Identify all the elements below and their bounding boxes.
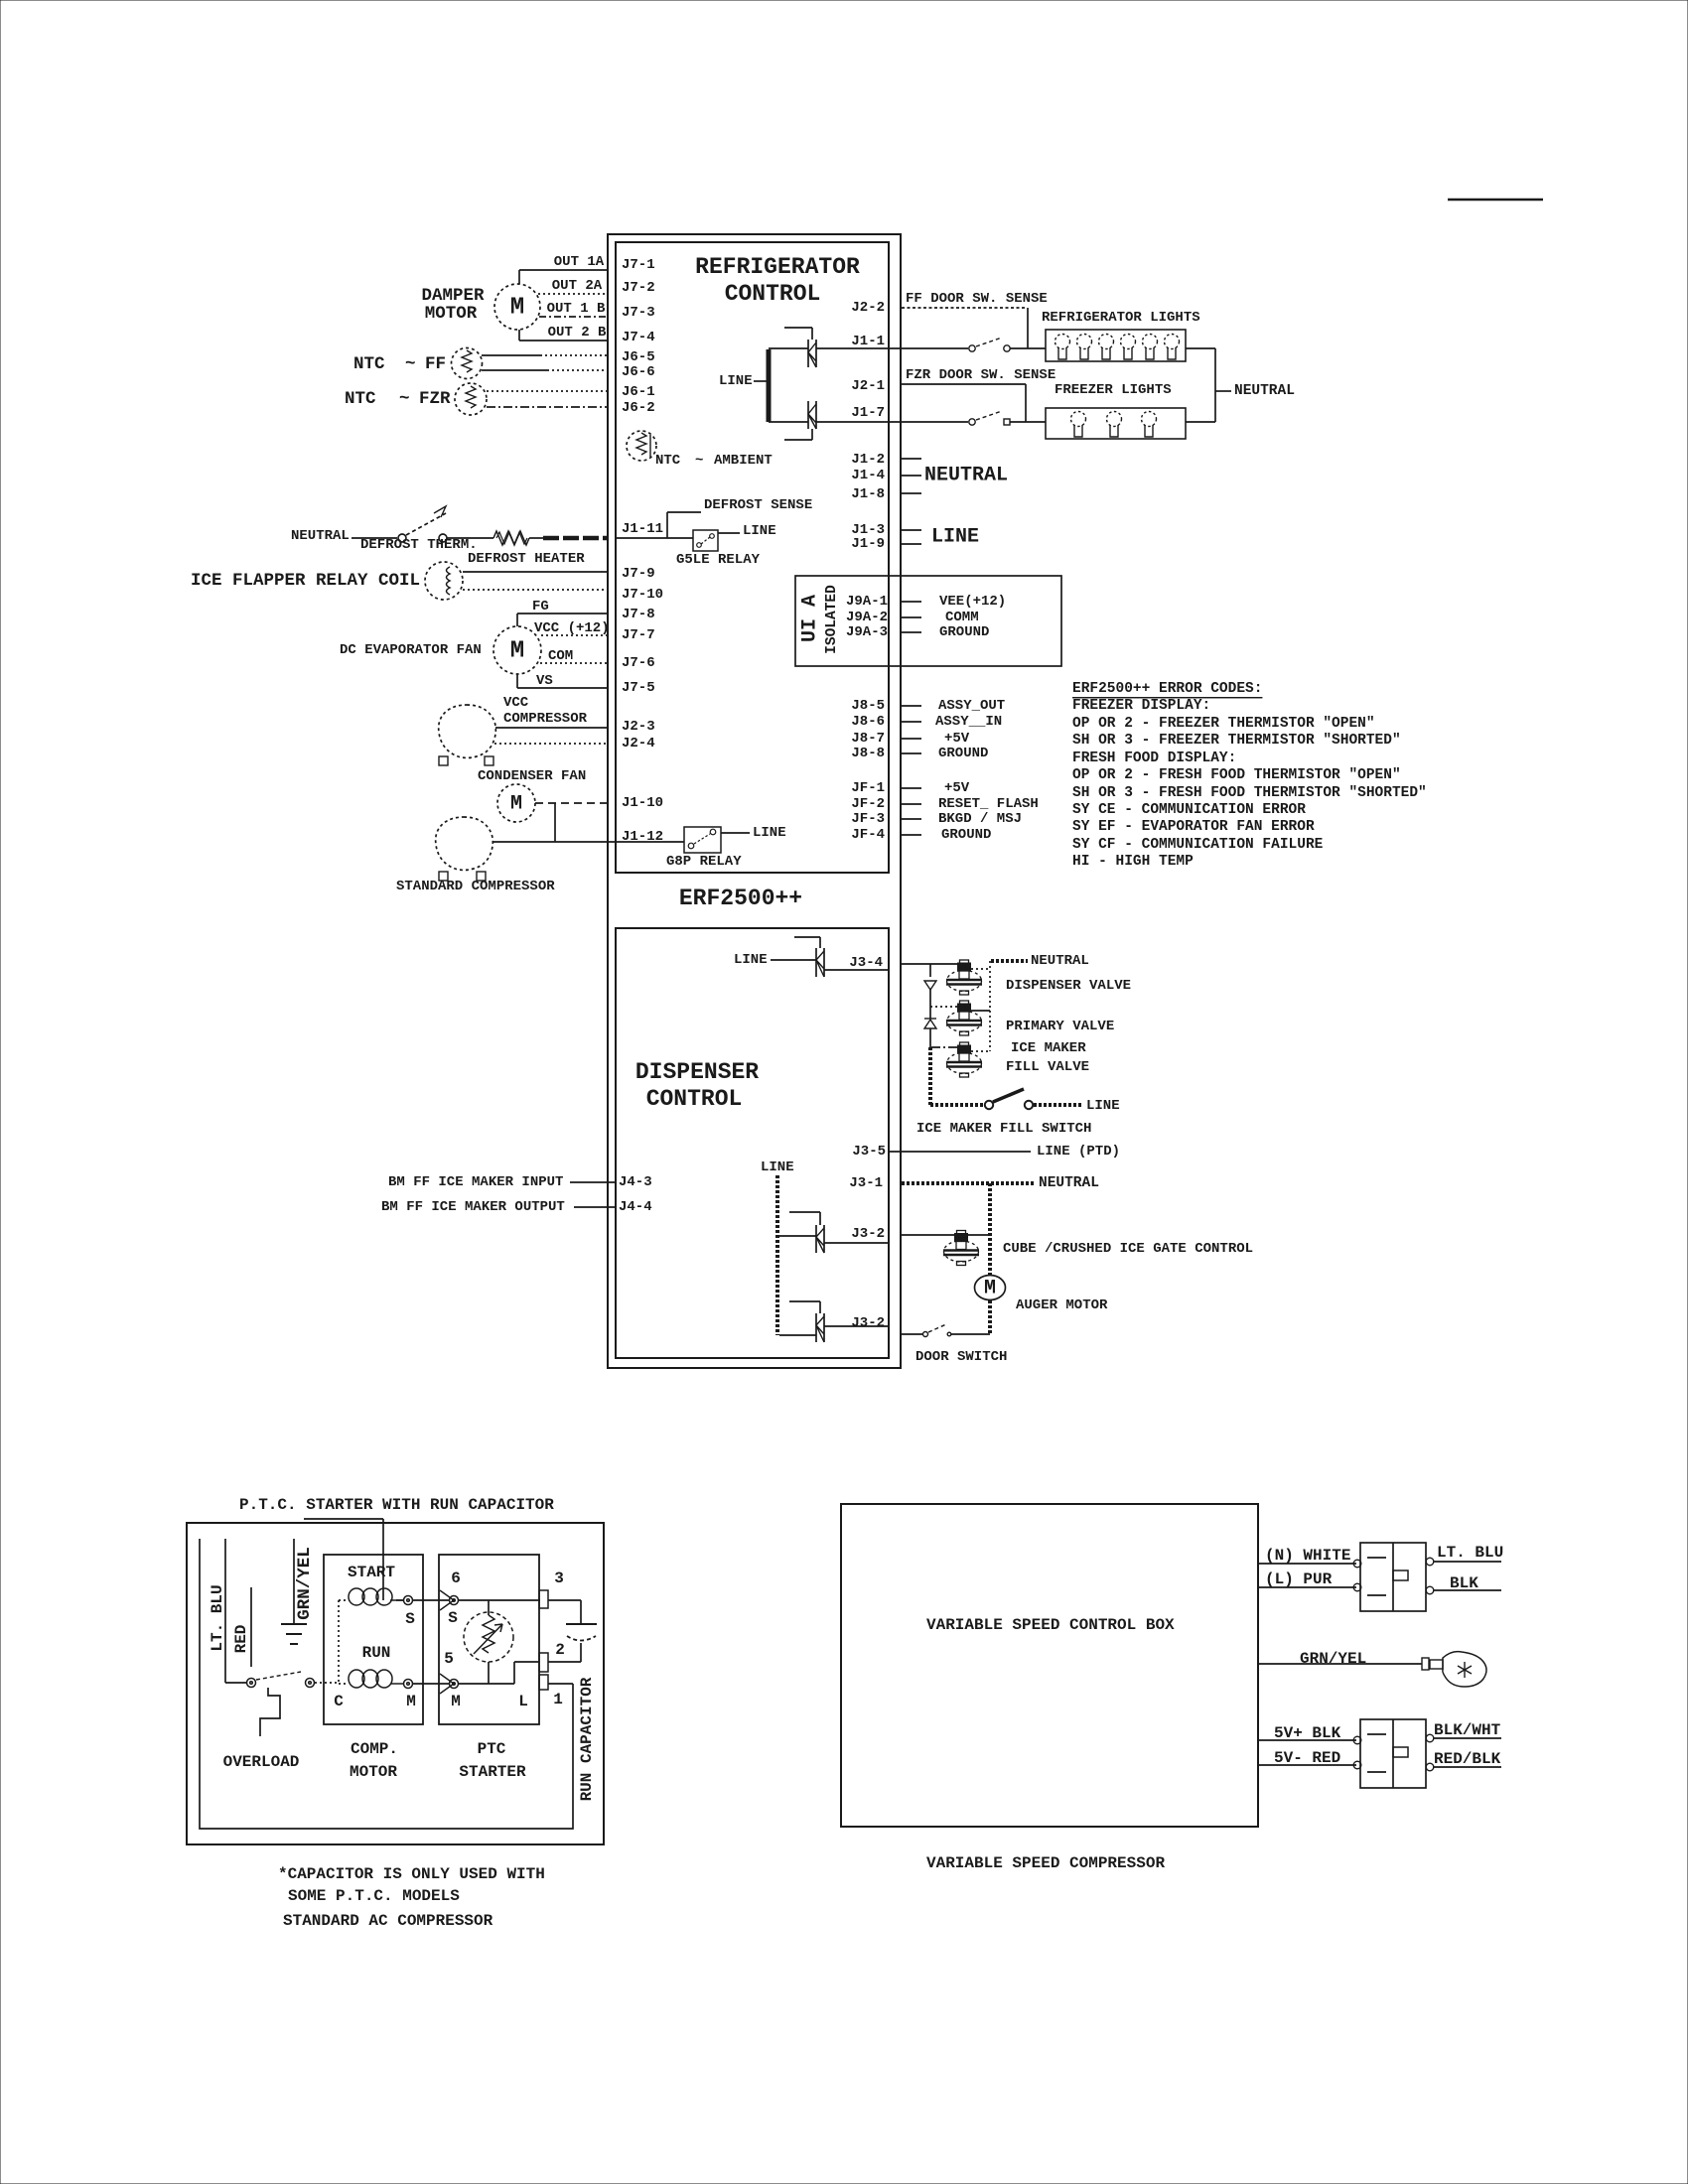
svg-text:RUN: RUN <box>362 1644 391 1662</box>
svg-text:J1-4: J1-4 <box>851 468 885 483</box>
svg-text:DISPENSER: DISPENSER <box>635 1059 759 1085</box>
svg-text:BKGD / MSJ: BKGD / MSJ <box>938 811 1022 827</box>
svg-text:FZR: FZR <box>419 389 451 409</box>
svg-text:CUBE /CRUSHED ICE GATE CONTROL: CUBE /CRUSHED ICE GATE CONTROL <box>1003 1241 1253 1257</box>
svg-text:J6-6: J6-6 <box>622 364 655 380</box>
svg-text:DISPENSER VALVE: DISPENSER VALVE <box>1006 978 1131 994</box>
svg-text:LINE: LINE <box>743 523 776 539</box>
svg-text:CONDENSER FAN: CONDENSER FAN <box>478 768 586 784</box>
svg-text:DC EVAPORATOR FAN: DC EVAPORATOR FAN <box>340 642 482 658</box>
svg-text:FREEZER DISPLAY:: FREEZER DISPLAY: <box>1072 698 1210 714</box>
svg-text:6: 6 <box>451 1570 461 1587</box>
svg-text:START: START <box>348 1564 395 1581</box>
svg-text:J7-1: J7-1 <box>622 257 655 273</box>
svg-text:J7-4: J7-4 <box>622 330 655 345</box>
svg-text:OUT 2 B: OUT 2 B <box>548 325 607 341</box>
svg-text:ISOLATED: ISOLATED <box>824 585 840 654</box>
svg-text:LINE: LINE <box>1086 1098 1120 1114</box>
svg-text:J7-8: J7-8 <box>622 607 655 622</box>
svg-text:ERF2500++ ERROR CODES:: ERF2500++ ERROR CODES: <box>1072 681 1262 697</box>
svg-text:SY CE - COMMUNICATION ERROR: SY CE - COMMUNICATION ERROR <box>1072 802 1306 818</box>
svg-text:J4-3: J4-3 <box>619 1174 652 1190</box>
svg-text:DAMPER: DAMPER <box>421 286 485 306</box>
svg-text:RESET_ FLASH: RESET_ FLASH <box>938 796 1039 812</box>
svg-text:GROUND: GROUND <box>938 746 988 761</box>
svg-text:J2-2: J2-2 <box>851 300 885 316</box>
svg-text:1: 1 <box>553 1691 563 1708</box>
svg-text:~: ~ <box>399 389 410 409</box>
svg-text:VCC: VCC <box>503 695 529 711</box>
svg-text:STANDARD COMPRESSOR: STANDARD COMPRESSOR <box>396 879 555 894</box>
svg-text:COMP.: COMP. <box>351 1740 398 1758</box>
svg-text:*CAPACITOR IS ONLY USED WITH: *CAPACITOR IS ONLY USED WITH <box>278 1865 545 1883</box>
svg-text:L: L <box>518 1693 528 1710</box>
svg-text:COM: COM <box>548 648 573 664</box>
svg-text:COMPRESSOR: COMPRESSOR <box>503 711 588 727</box>
svg-text:NTC: NTC <box>353 354 385 374</box>
svg-text:J8-6: J8-6 <box>851 714 885 730</box>
svg-text:J3-1: J3-1 <box>849 1175 883 1191</box>
svg-text:HI - HIGH TEMP: HI - HIGH TEMP <box>1072 854 1194 870</box>
svg-text:G5LE RELAY: G5LE RELAY <box>676 552 761 568</box>
svg-text:J6-2: J6-2 <box>622 400 655 416</box>
svg-text:UI A: UI A <box>799 595 822 642</box>
svg-text:VARIABLE SPEED COMPRESSOR: VARIABLE SPEED COMPRESSOR <box>926 1854 1165 1872</box>
svg-text:J7-9: J7-9 <box>622 566 655 582</box>
svg-text:FZR DOOR SW. SENSE: FZR DOOR SW. SENSE <box>906 367 1055 383</box>
svg-text:OUT 1A: OUT 1A <box>554 254 605 270</box>
svg-text:ICE FLAPPER RELAY COIL: ICE FLAPPER RELAY COIL <box>191 571 420 591</box>
svg-text:BLK/WHT: BLK/WHT <box>1434 1721 1501 1739</box>
svg-text:S: S <box>448 1609 458 1627</box>
svg-text:MOTOR: MOTOR <box>350 1763 397 1781</box>
svg-text:NEUTRAL: NEUTRAL <box>1039 1175 1099 1191</box>
svg-text:PRIMARY VALVE: PRIMARY VALVE <box>1006 1019 1114 1034</box>
svg-text:LINE: LINE <box>734 952 768 968</box>
svg-text:OP OR 2 - FREEZER THERMISTOR ": OP OR 2 - FREEZER THERMISTOR "OPEN" <box>1072 716 1375 732</box>
svg-text:REFRIGERATOR: REFRIGERATOR <box>695 254 860 280</box>
svg-text:NEUTRAL: NEUTRAL <box>924 465 1008 487</box>
svg-text:J4-4: J4-4 <box>619 1199 652 1215</box>
svg-text:STARTER: STARTER <box>459 1763 526 1781</box>
svg-text:OP OR 2 - FRESH FOOD THERMISTO: OP OR 2 - FRESH FOOD THERMISTOR "OPEN" <box>1072 767 1401 783</box>
svg-text:ICE MAKER: ICE MAKER <box>1011 1040 1086 1056</box>
svg-text:(L) PUR: (L) PUR <box>1265 1570 1333 1588</box>
svg-text:NEUTRAL: NEUTRAL <box>1234 383 1295 399</box>
svg-text:J8-8: J8-8 <box>851 746 885 761</box>
svg-text:ICE MAKER FILL SWITCH: ICE MAKER FILL SWITCH <box>916 1121 1091 1137</box>
svg-text:C: C <box>334 1693 344 1710</box>
svg-text:CONTROL: CONTROL <box>725 281 821 307</box>
svg-text:MOTOR: MOTOR <box>425 304 478 324</box>
svg-text:3: 3 <box>554 1570 564 1587</box>
svg-text:RED/BLK: RED/BLK <box>1434 1750 1501 1768</box>
svg-text:J3-4: J3-4 <box>849 955 883 971</box>
svg-text:M: M <box>406 1693 416 1710</box>
svg-text:GROUND: GROUND <box>941 827 991 843</box>
svg-text:SY CF - COMMUNICATION FAILURE: SY CF - COMMUNICATION FAILURE <box>1072 837 1324 853</box>
svg-text:M: M <box>510 638 524 665</box>
svg-text:LT. BLU: LT. BLU <box>1437 1544 1503 1562</box>
svg-text:J1-2: J1-2 <box>851 452 885 468</box>
svg-text:M: M <box>451 1693 461 1710</box>
svg-text:J1-8: J1-8 <box>851 486 885 502</box>
svg-text:BM FF ICE MAKER OUTPUT: BM FF ICE MAKER OUTPUT <box>381 1199 565 1215</box>
svg-text:~: ~ <box>405 354 416 374</box>
svg-text:ERF2500++: ERF2500++ <box>679 886 802 911</box>
svg-text:5: 5 <box>444 1650 454 1668</box>
svg-text:BM FF ICE MAKER INPUT: BM FF ICE MAKER INPUT <box>388 1174 563 1190</box>
svg-text:AMBIENT: AMBIENT <box>714 453 773 469</box>
svg-text:LINE: LINE <box>761 1160 794 1175</box>
svg-text:ASSY__IN: ASSY__IN <box>935 714 1002 730</box>
svg-text:+5V: +5V <box>944 731 970 747</box>
svg-text:J2-4: J2-4 <box>622 736 655 751</box>
svg-text:JF-3: JF-3 <box>851 811 885 827</box>
svg-text:J8-7: J8-7 <box>851 731 885 747</box>
svg-text:+5V: +5V <box>944 780 970 796</box>
svg-text:OUT 1 B: OUT 1 B <box>547 301 606 317</box>
svg-text:J6-1: J6-1 <box>622 384 655 400</box>
svg-text:FREEZER LIGHTS: FREEZER LIGHTS <box>1055 382 1172 398</box>
svg-text:OUT 2A: OUT 2A <box>552 278 603 294</box>
svg-text:FF DOOR SW. SENSE: FF DOOR SW. SENSE <box>906 291 1048 307</box>
svg-text:S: S <box>405 1610 415 1628</box>
svg-text:JF-1: JF-1 <box>851 780 885 796</box>
svg-text:(N) WHITE: (N) WHITE <box>1265 1547 1350 1565</box>
svg-text:J7-10: J7-10 <box>622 587 663 603</box>
svg-text:J3-2: J3-2 <box>851 1226 885 1242</box>
svg-text:J9A-2: J9A-2 <box>846 610 888 625</box>
svg-text:VARIABLE SPEED CONTROL BOX: VARIABLE SPEED CONTROL BOX <box>926 1616 1175 1634</box>
svg-text:~: ~ <box>695 453 703 469</box>
svg-text:M: M <box>510 295 524 322</box>
svg-text:FILL VALVE: FILL VALVE <box>1006 1059 1089 1075</box>
svg-text:M: M <box>984 1278 996 1300</box>
svg-text:LINE: LINE <box>931 526 979 549</box>
svg-text:DEFROST HEATER: DEFROST HEATER <box>468 551 585 567</box>
svg-text:J3-5: J3-5 <box>852 1144 886 1160</box>
svg-text:SY EF - EVAPORATOR FAN ERROR: SY EF - EVAPORATOR FAN ERROR <box>1072 819 1315 835</box>
svg-text:M: M <box>510 793 522 816</box>
svg-text:J9A-1: J9A-1 <box>846 594 888 610</box>
svg-text:VEE(+12): VEE(+12) <box>939 594 1006 610</box>
svg-text:DEFROST SENSE: DEFROST SENSE <box>704 497 812 513</box>
svg-text:JF-2: JF-2 <box>851 796 885 812</box>
svg-text:P.T.C. STARTER WITH RUN CAPACI: P.T.C. STARTER WITH RUN CAPACITOR <box>239 1496 554 1514</box>
svg-text:NEUTRAL: NEUTRAL <box>1031 953 1089 969</box>
svg-text:J1-9: J1-9 <box>851 536 885 552</box>
svg-text:SOME P.T.C. MODELS: SOME P.T.C. MODELS <box>288 1887 460 1905</box>
svg-text:J1-11: J1-11 <box>622 521 663 537</box>
svg-text:AUGER MOTOR: AUGER MOTOR <box>1016 1297 1108 1313</box>
svg-text:LINE: LINE <box>753 825 786 841</box>
svg-text:J7-7: J7-7 <box>622 627 655 643</box>
svg-text:J7-5: J7-5 <box>622 680 655 696</box>
svg-text:J2-1: J2-1 <box>851 378 885 394</box>
svg-text:VS: VS <box>536 673 553 689</box>
svg-text:OVERLOAD: OVERLOAD <box>223 1753 300 1771</box>
svg-text:J1-1: J1-1 <box>851 334 885 349</box>
svg-text:SH OR 3 - FREEZER THERMISTOR ": SH OR 3 - FREEZER THERMISTOR "SHORTED" <box>1072 733 1401 749</box>
svg-text:LINE: LINE <box>719 373 753 389</box>
svg-text:VCC (+12): VCC (+12) <box>534 620 610 636</box>
svg-text:J9A-3: J9A-3 <box>846 624 888 640</box>
svg-text:J1-7: J1-7 <box>851 405 885 421</box>
svg-text:COMM: COMM <box>945 610 979 625</box>
svg-text:PTC: PTC <box>478 1740 506 1758</box>
svg-text:J6-5: J6-5 <box>622 349 655 365</box>
svg-text:NTC: NTC <box>655 453 681 469</box>
svg-text:NEUTRAL: NEUTRAL <box>291 528 350 544</box>
svg-text:J8-5: J8-5 <box>851 698 885 714</box>
svg-text:G8P RELAY: G8P RELAY <box>666 854 742 870</box>
svg-text:GROUND: GROUND <box>939 624 989 640</box>
svg-text:J7-2: J7-2 <box>622 280 655 296</box>
svg-text:RED: RED <box>232 1625 250 1654</box>
svg-text:DOOR SWITCH: DOOR SWITCH <box>915 1349 1007 1365</box>
svg-text:GRN/YEL: GRN/YEL <box>1300 1650 1366 1668</box>
svg-text:FG: FG <box>532 599 549 614</box>
svg-text:SH OR 3 - FRESH FOOD THERMISTO: SH OR 3 - FRESH FOOD THERMISTOR "SHORTED… <box>1072 785 1427 801</box>
svg-text:FF: FF <box>425 354 446 374</box>
svg-text:DEFROST THERM.: DEFROST THERM. <box>360 537 478 553</box>
svg-text:LT. BLU: LT. BLU <box>209 1584 226 1651</box>
svg-text:STANDARD AC COMPRESSOR: STANDARD AC COMPRESSOR <box>283 1912 493 1930</box>
svg-text:CONTROL: CONTROL <box>646 1086 743 1112</box>
svg-text:J7-3: J7-3 <box>622 305 655 321</box>
svg-text:FRESH FOOD DISPLAY:: FRESH FOOD DISPLAY: <box>1072 751 1236 766</box>
svg-text:LINE (PTD): LINE (PTD) <box>1037 1144 1120 1160</box>
svg-text:RUN CAPACITOR: RUN CAPACITOR <box>578 1677 596 1801</box>
svg-text:J2-3: J2-3 <box>622 719 655 735</box>
svg-text:2: 2 <box>555 1641 565 1659</box>
svg-text:NTC: NTC <box>345 389 376 409</box>
svg-text:J3-2: J3-2 <box>851 1315 885 1331</box>
svg-text:J7-6: J7-6 <box>622 655 655 671</box>
svg-text:GRN/YEL: GRN/YEL <box>295 1547 315 1620</box>
svg-text:ASSY_OUT: ASSY_OUT <box>938 698 1005 714</box>
svg-text:J1-10: J1-10 <box>622 795 663 811</box>
svg-text:JF-4: JF-4 <box>851 827 885 843</box>
svg-text:REFRIGERATOR LIGHTS: REFRIGERATOR LIGHTS <box>1042 310 1200 326</box>
